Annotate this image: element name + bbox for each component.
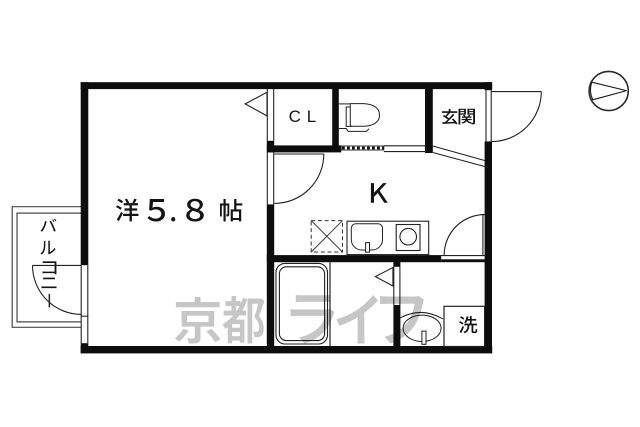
svg-text:C: C	[289, 107, 301, 126]
svg-text:L: L	[307, 107, 316, 126]
